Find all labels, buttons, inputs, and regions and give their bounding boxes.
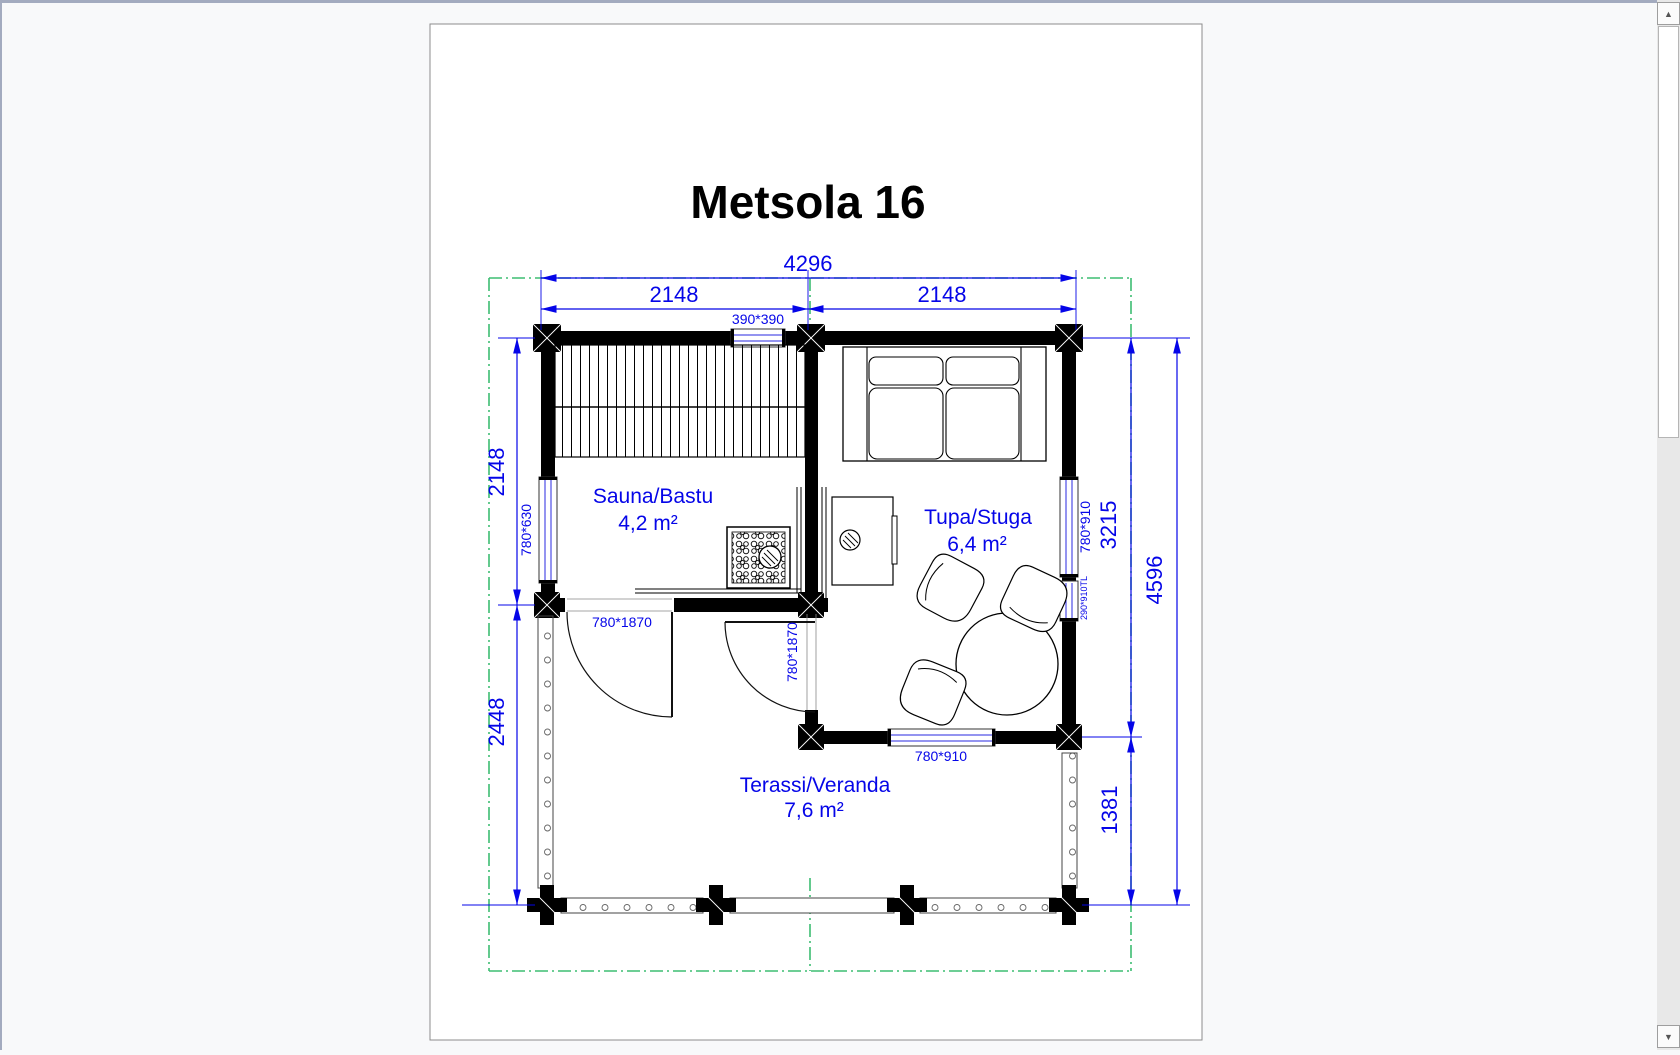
- dim-total-height: 4596: [1142, 556, 1167, 605]
- room-living-area: 6,4 m²: [947, 533, 1007, 556]
- document-canvas: Metsola 16: [0, 0, 1657, 1050]
- scroll-down-button[interactable]: ▼: [1657, 1025, 1680, 1048]
- scroll-down-icon: ▼: [1664, 1032, 1673, 1042]
- drawing-title: Metsola 16: [690, 176, 925, 228]
- dim-living-height: 3215: [1096, 501, 1121, 550]
- right-window-780x910: [1060, 477, 1078, 577]
- room-sauna-name: Sauna/Bastu: [593, 485, 713, 508]
- room-veranda-area: 7,6 m²: [784, 799, 844, 822]
- sauna-benches: [555, 345, 805, 457]
- dim-veranda-depth: 2448: [484, 698, 509, 747]
- left-window-780x630: [539, 477, 557, 583]
- room-sauna-area: 4,2 m²: [618, 512, 678, 535]
- label-top-window: 390*390: [732, 311, 784, 327]
- dim-total-width: 4296: [784, 251, 833, 276]
- scrollbar-thumb[interactable]: [1658, 26, 1679, 438]
- scroll-up-icon: ▲: [1664, 9, 1673, 19]
- label-right-window: 780*910: [1077, 501, 1093, 553]
- dim-width-left: 2148: [650, 282, 699, 307]
- room-living-name: Tupa/Stuga: [924, 506, 1032, 529]
- label-left-window: 780*630: [518, 504, 534, 556]
- vertical-scrollbar[interactable]: ▲ ▼: [1657, 0, 1680, 1050]
- room-veranda-name: Terassi/Veranda: [740, 774, 891, 797]
- dim-sauna-depth: 2148: [484, 448, 509, 497]
- dim-veranda-height: 1381: [1097, 786, 1122, 835]
- kitchen-counter: [832, 497, 897, 585]
- floorplan-svg: Metsola 16: [0, 0, 1657, 1050]
- dim-width-right: 2148: [918, 282, 967, 307]
- label-sauna-door: 780*1870: [592, 614, 652, 630]
- label-right-small-window: 290*910TL: [1079, 576, 1089, 620]
- label-living-door: 780*1870: [784, 622, 800, 682]
- bottom-window-780x910: [888, 729, 995, 746]
- label-bottom-window: 780*910: [915, 748, 967, 764]
- top-window-390x390: [731, 329, 785, 347]
- scroll-up-button[interactable]: ▲: [1657, 2, 1680, 25]
- sauna-stove: [727, 527, 790, 588]
- sofa: [843, 347, 1046, 461]
